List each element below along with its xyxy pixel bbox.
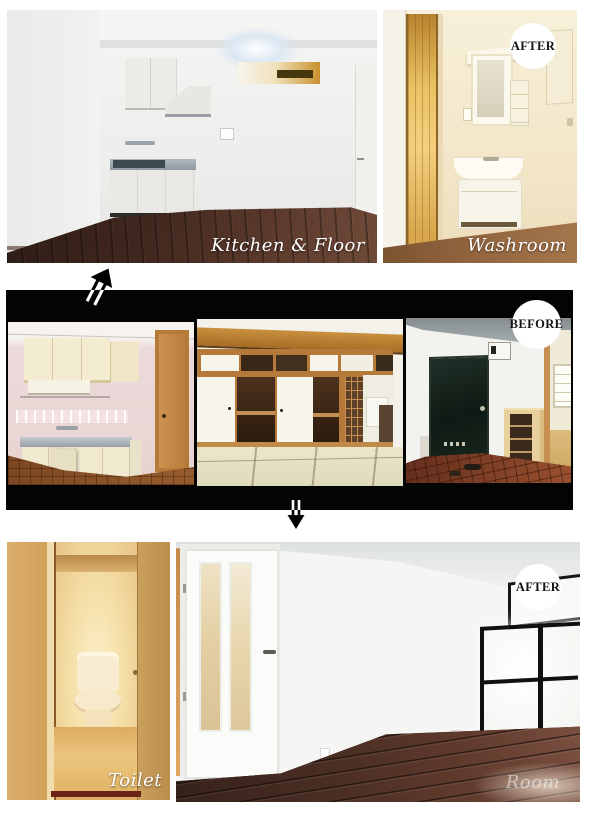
range-hood	[28, 380, 90, 395]
room-label: Room	[506, 772, 560, 793]
shoji-screen	[345, 377, 363, 445]
room-window	[553, 364, 571, 408]
cabinet-open-interior	[510, 414, 532, 464]
glimpse-dark-doorway	[379, 405, 393, 447]
after-badge-text: AFTER	[511, 39, 555, 54]
hanging-rail	[20, 396, 110, 398]
stove	[113, 160, 165, 168]
door-hinge-top	[183, 584, 186, 593]
closet-shelf-right	[313, 413, 339, 417]
upper-cabinets	[24, 338, 110, 383]
closet-opening-left	[237, 377, 275, 442]
kitchen-floor-photo: Kitchen & Floor	[7, 10, 377, 263]
door-hinge-bottom	[183, 692, 186, 701]
right-door	[355, 65, 377, 217]
shower-door	[406, 14, 438, 256]
cabinet-seam	[150, 58, 151, 108]
door-handle	[133, 670, 138, 675]
shower-door-frame	[438, 14, 443, 256]
threshold-strip	[51, 791, 141, 797]
door-knob	[480, 406, 485, 411]
faucet	[56, 426, 78, 430]
toilet-label: Toilet	[108, 770, 162, 791]
door-jamb	[383, 10, 406, 263]
upper-panel-white-1	[201, 355, 239, 371]
kitchen-floor-label: Kitchen & Floor	[211, 235, 365, 256]
toilet-tank	[77, 652, 119, 692]
niche-lamp	[277, 70, 313, 78]
fusuma-handle-left	[228, 407, 231, 410]
after-badge-washroom: AFTER	[510, 23, 556, 69]
upper-opening-dark-3	[376, 355, 393, 371]
down-arrow-icon	[286, 500, 306, 530]
before-closet-photo	[197, 319, 403, 486]
side-shelf	[510, 80, 529, 126]
lower-cabinets	[110, 170, 196, 216]
toilet-photo: Toilet	[7, 542, 170, 800]
after-badge-text: AFTER	[516, 580, 560, 595]
tile-splashback	[16, 410, 128, 423]
upper-opening-dark-1	[241, 355, 273, 371]
closet-shelf-left	[237, 411, 275, 415]
before-strip: BEFORE	[6, 290, 573, 510]
wall-outlet	[463, 108, 472, 121]
upper-cabinet-side	[110, 342, 139, 382]
after-badge-room: AFTER	[515, 564, 561, 610]
faucet	[125, 141, 155, 145]
tatami-floor	[197, 447, 403, 486]
vanity-kick	[461, 222, 517, 227]
shoe-single	[450, 471, 460, 476]
upper-opening-dark-2	[276, 355, 307, 371]
wood-door	[159, 334, 185, 468]
wardrobe-doors	[7, 10, 100, 248]
towel-hook	[567, 118, 573, 126]
vanity-drawer-line	[461, 191, 517, 192]
door-vents	[444, 442, 466, 446]
shoes	[464, 464, 481, 470]
shelf-shadow	[56, 555, 137, 572]
right-wall	[137, 542, 170, 800]
door-handle	[357, 158, 364, 160]
upper-panel-white-3	[341, 355, 373, 371]
upper-panel-white-2	[310, 355, 338, 371]
door-glass-panel-right	[229, 562, 252, 732]
mirror-glass	[477, 60, 504, 117]
door-lever-handle	[263, 650, 276, 654]
left-wall	[7, 542, 47, 800]
collage-page: Kitchen & Floor Washroom	[0, 0, 600, 821]
before-badge-text: BEFORE	[510, 317, 564, 332]
fusuma-handle-center	[280, 409, 283, 412]
closet-opening-right	[313, 377, 339, 442]
breaker-switch	[491, 346, 496, 354]
before-kitchen-photo	[8, 322, 194, 485]
counter	[20, 437, 132, 447]
fusuma-panel-left	[197, 377, 237, 442]
door-knob	[162, 414, 166, 418]
door-glass-panel-left	[199, 562, 222, 732]
vanity-faucet	[483, 157, 499, 161]
before-badge: BEFORE	[512, 300, 561, 349]
washroom-label: Washroom	[467, 235, 567, 256]
intercom-panel	[220, 128, 234, 140]
